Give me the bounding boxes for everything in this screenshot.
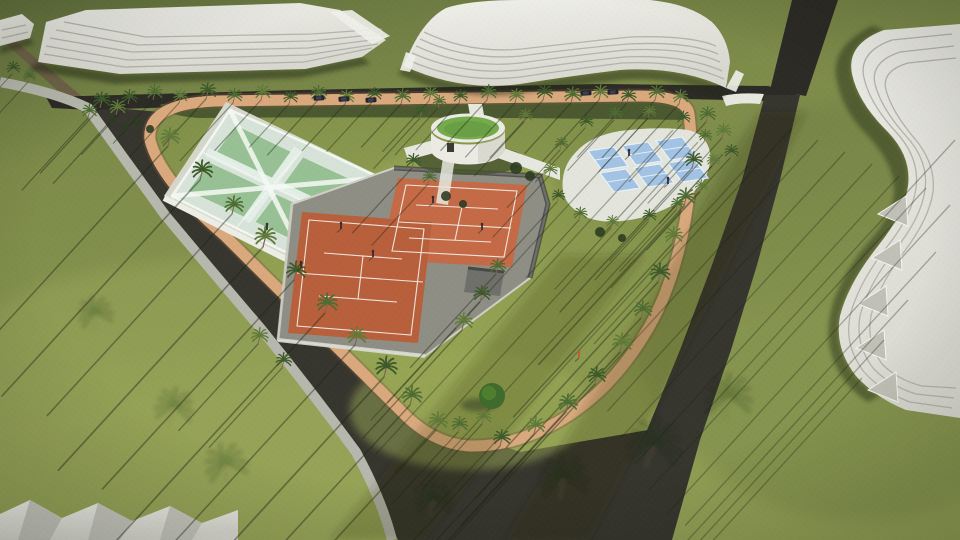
render-canvas (0, 0, 960, 540)
vignette (0, 0, 960, 540)
architectural-render (0, 0, 960, 540)
